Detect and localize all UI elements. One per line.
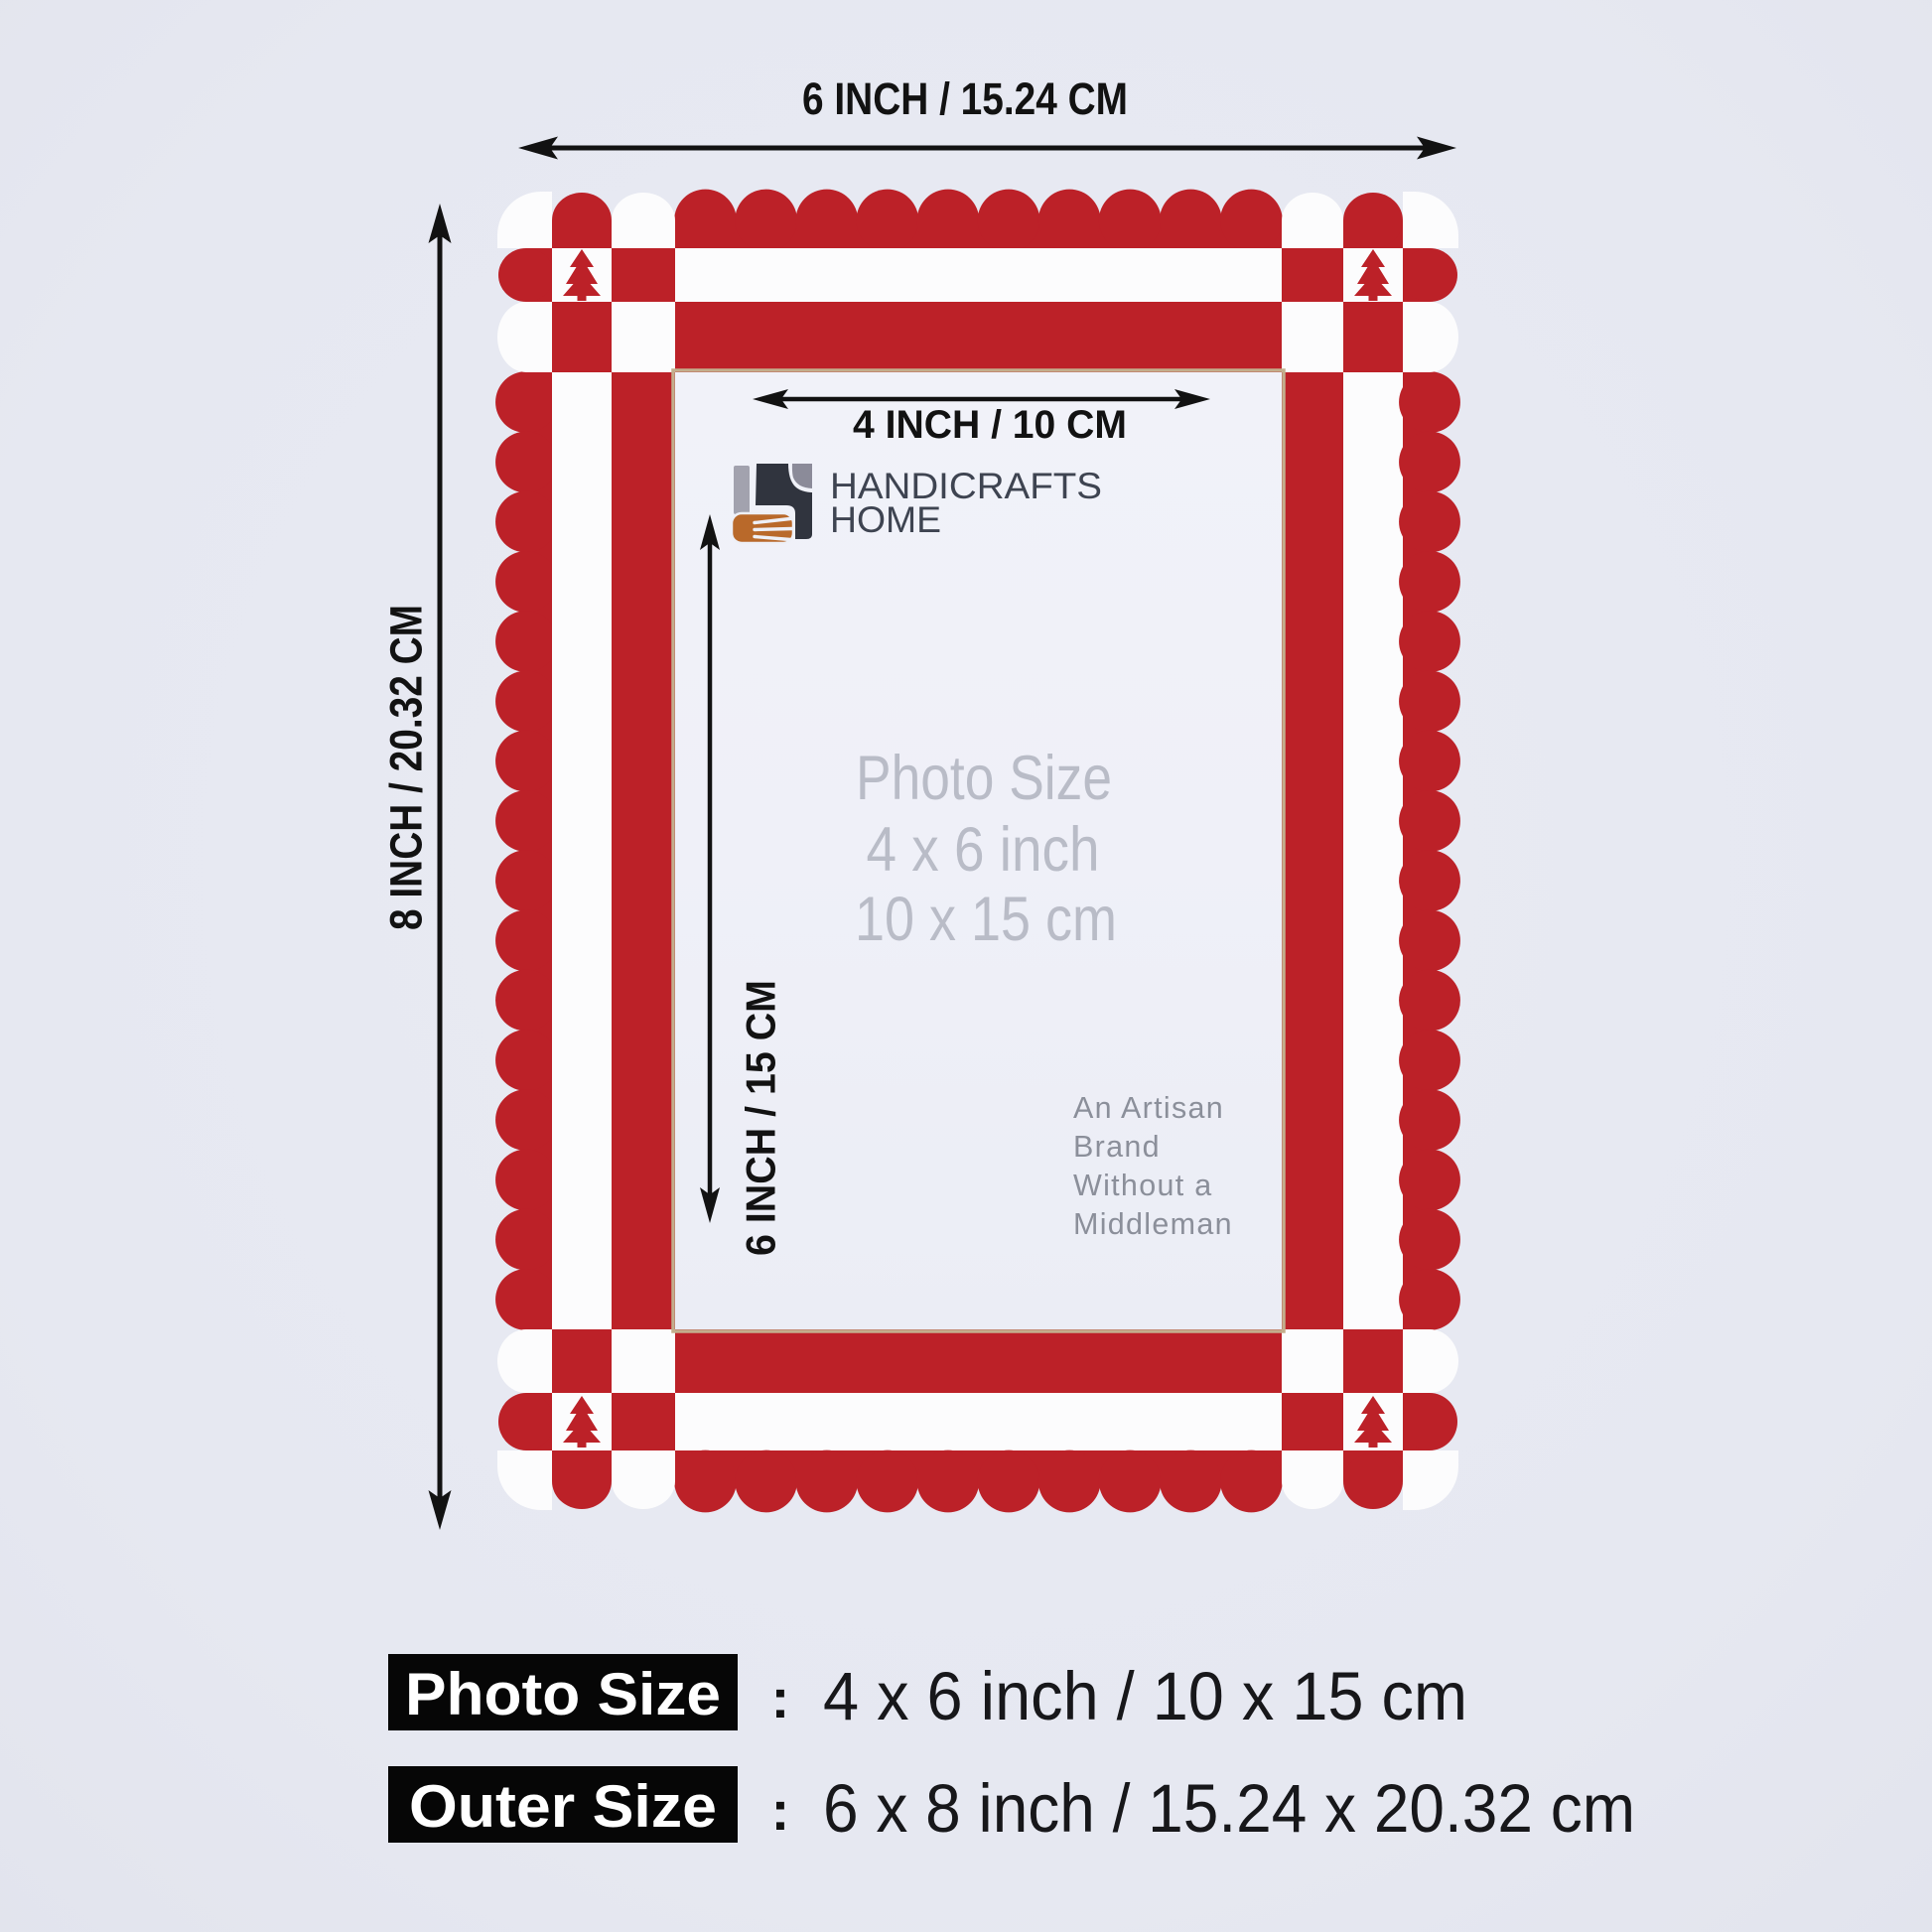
svg-text:Photo Size: Photo Size	[405, 1661, 721, 1727]
svg-text:Brand: Brand	[1073, 1130, 1161, 1164]
svg-text:Outer Size: Outer Size	[409, 1773, 717, 1840]
svg-text:8 INCH / 20.32 CM: 8 INCH / 20.32 CM	[381, 605, 432, 930]
svg-text:4 x 6 inch: 4 x 6 inch	[867, 815, 1100, 885]
svg-text:6 INCH / 15.24 CM: 6 INCH / 15.24 CM	[802, 73, 1128, 124]
svg-text:Photo Size: Photo Size	[856, 744, 1112, 813]
svg-text:HOME: HOME	[830, 499, 941, 540]
svg-text:Middleman: Middleman	[1073, 1207, 1233, 1241]
svg-text:4 x 6 inch / 10 x 15 cm: 4 x 6 inch / 10 x 15 cm	[823, 1658, 1467, 1734]
svg-text:6 x 8 inch / 15.24 x 20.32 cm: 6 x 8 inch / 15.24 x 20.32 cm	[823, 1770, 1635, 1847]
svg-text:10 x 15 cm: 10 x 15 cm	[855, 885, 1117, 954]
svg-text::: :	[771, 1667, 790, 1729]
svg-text:6 INCH / 15 CM: 6 INCH / 15 CM	[738, 980, 784, 1256]
svg-text:An Artisan: An Artisan	[1073, 1091, 1224, 1125]
svg-text:Without a: Without a	[1073, 1169, 1213, 1202]
svg-text::: :	[771, 1779, 790, 1842]
svg-text:4 INCH / 10 CM: 4 INCH / 10 CM	[853, 403, 1127, 447]
